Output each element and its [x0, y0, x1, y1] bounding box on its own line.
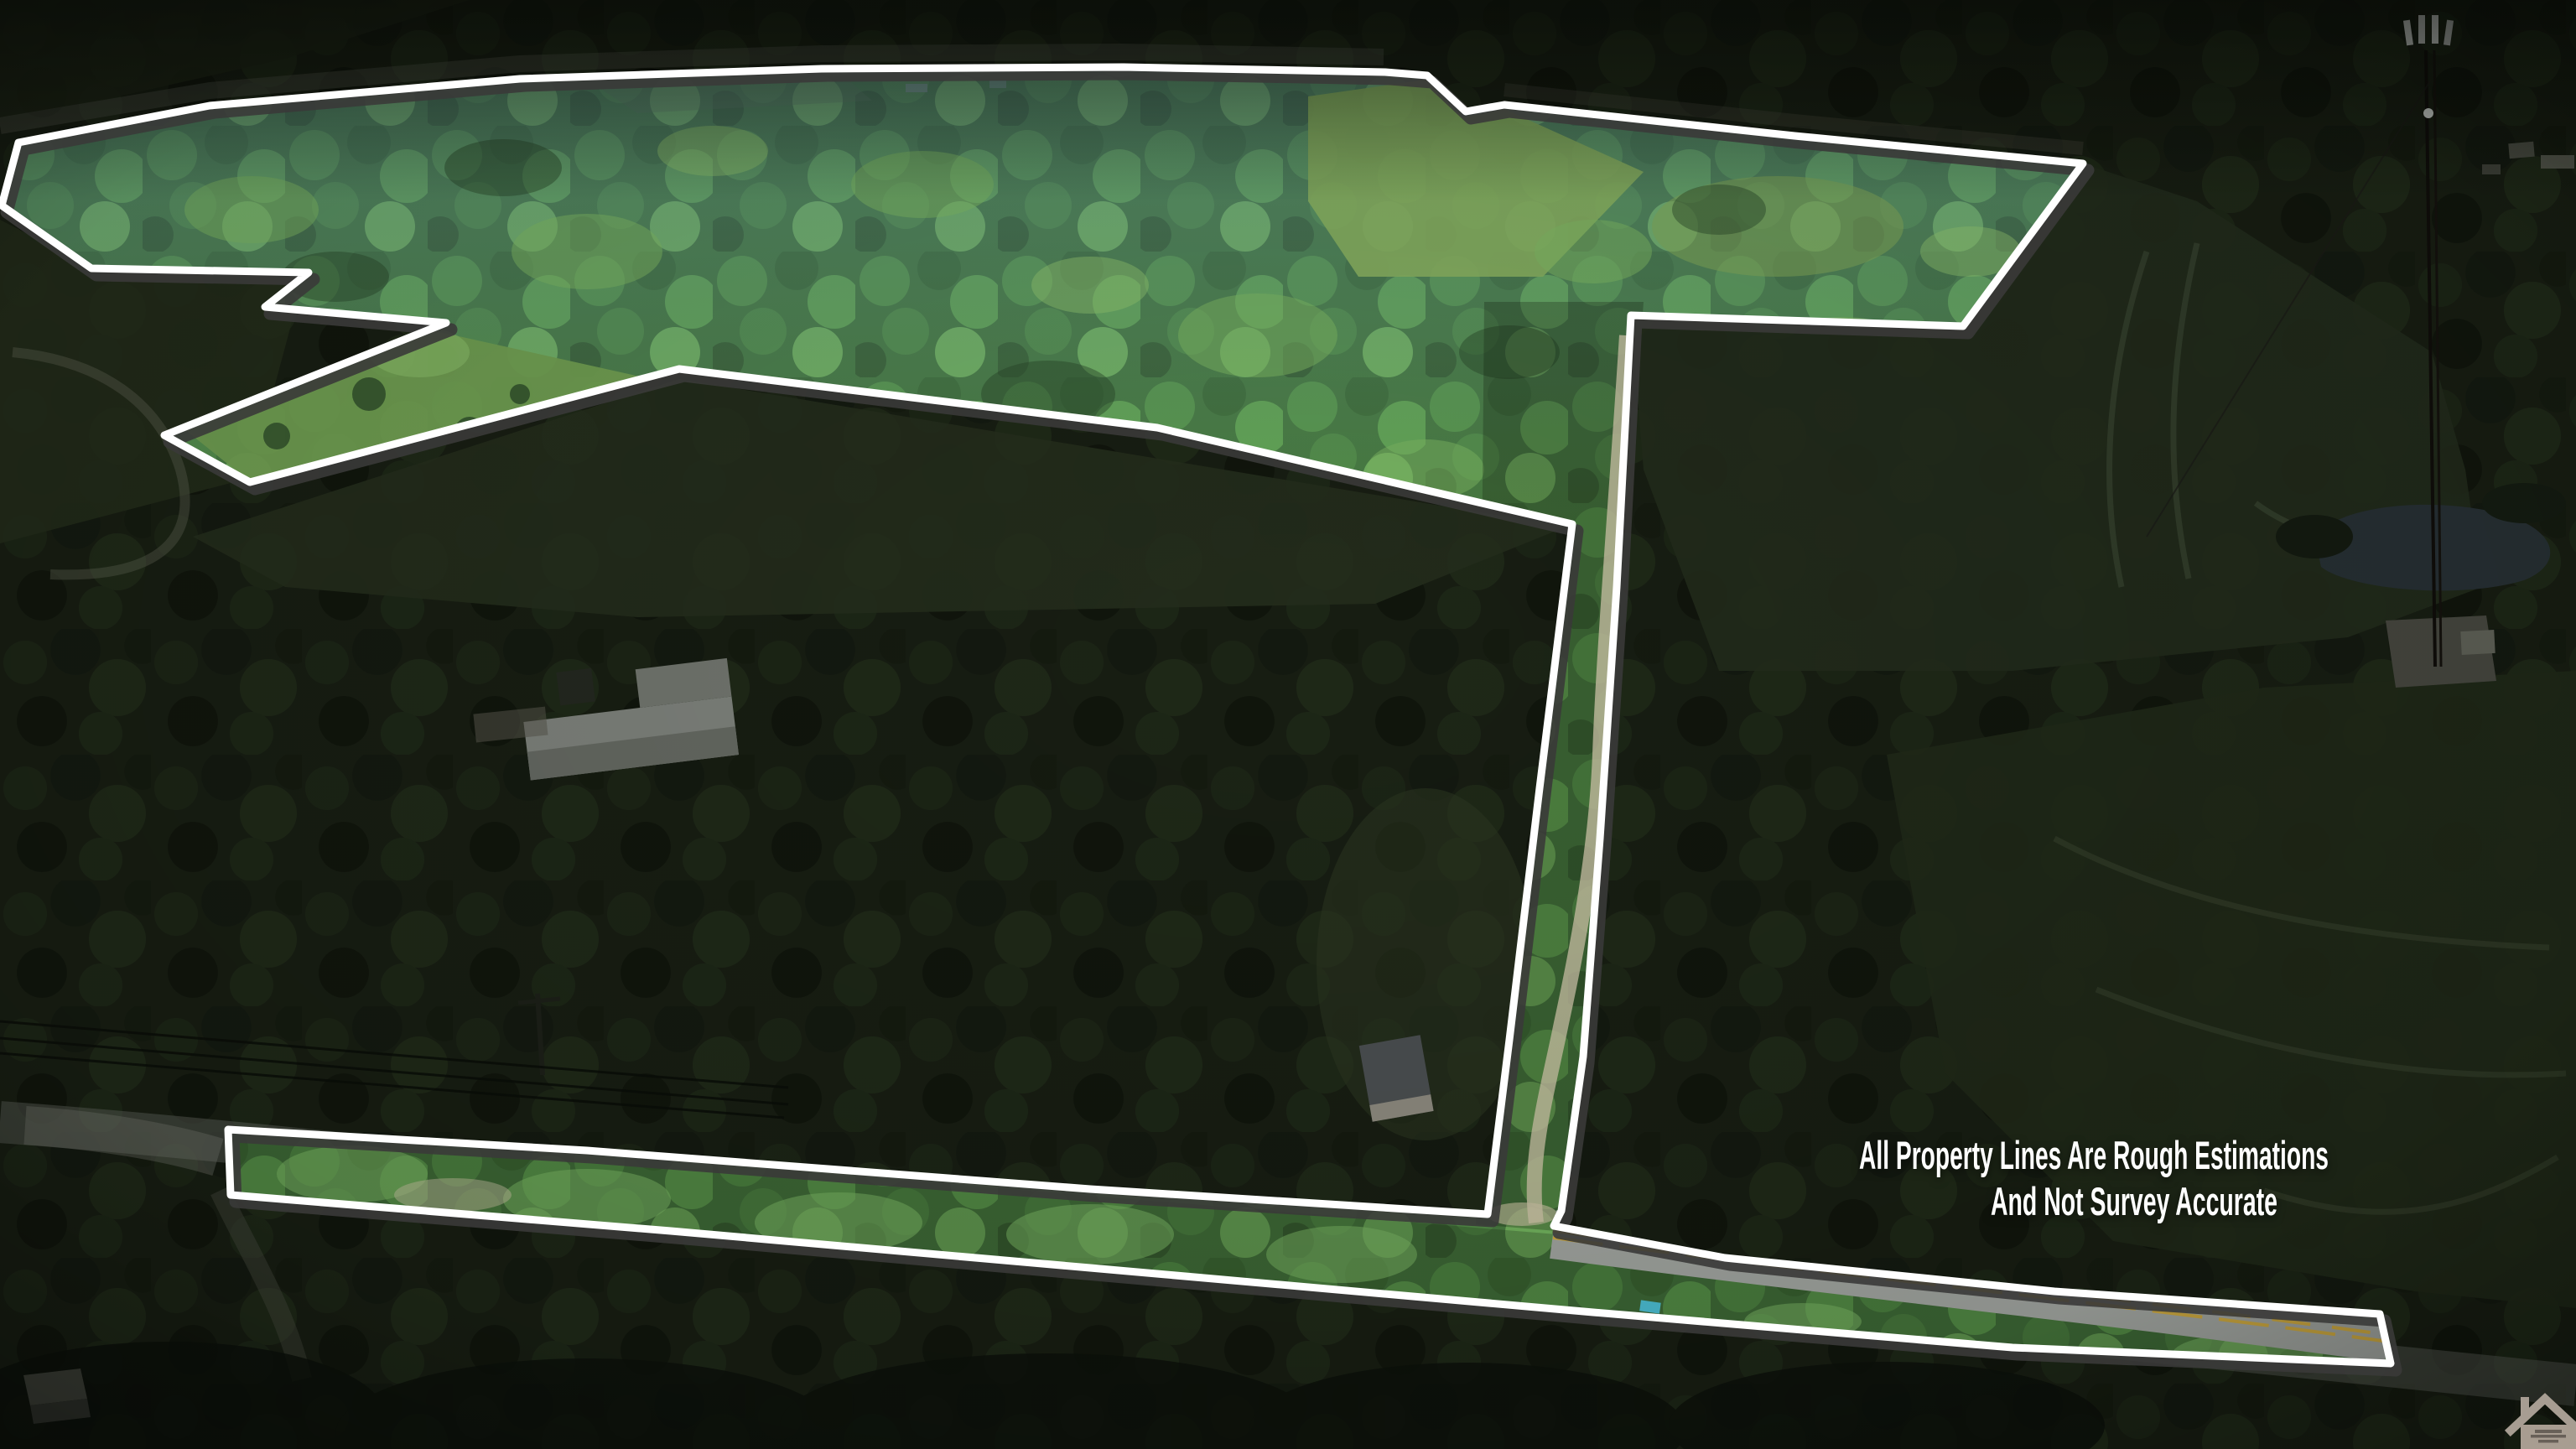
photo-canvas: All Property Lines Are Rough Estimations…: [0, 0, 2576, 1449]
disclaimer-line-2: And Not Survey Accurate: [1991, 1179, 2277, 1223]
aerial-property-photo: All Property Lines Are Rough Estimations…: [0, 0, 2576, 1449]
vignette: [0, 0, 2576, 1449]
disclaimer-line-1: All Property Lines Are Rough Estimations: [1859, 1133, 2329, 1177]
